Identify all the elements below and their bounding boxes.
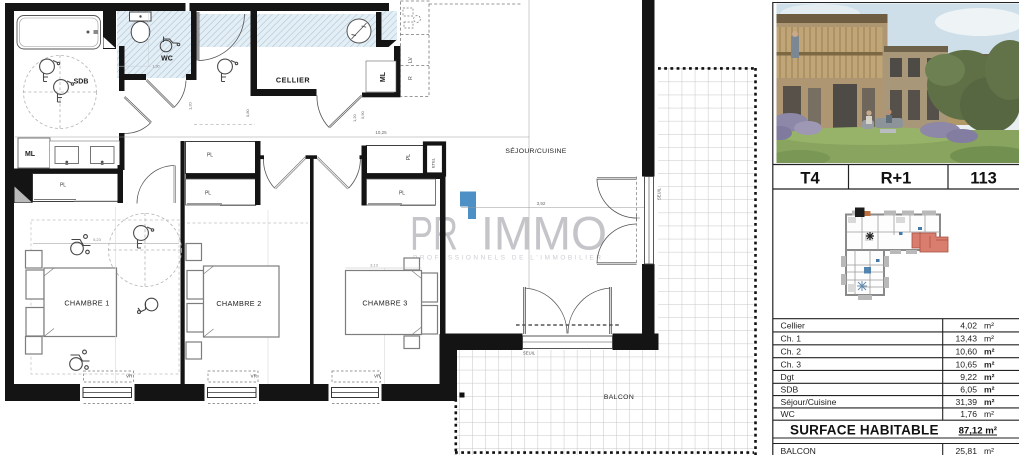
svg-text:PL: PL [207,153,213,159]
svg-text:SDB: SDB [74,79,89,86]
svg-text:1,30: 1,30 [153,65,160,69]
svg-text:9,22: 9,22 [960,372,977,382]
svg-text:ETEL: ETEL [431,157,436,168]
svg-text:87,12 m²: 87,12 m² [959,426,997,437]
svg-text:3,13: 3,13 [370,263,379,268]
svg-text:CHAMBRE 2: CHAMBRE 2 [216,299,261,308]
svg-text:CHAMBRE 3: CHAMBRE 3 [362,299,407,308]
svg-text:1,76: 1,76 [960,409,977,419]
svg-text:Cellier: Cellier [781,321,805,331]
svg-text:CELLIER: CELLIER [276,76,311,85]
svg-text:PL: PL [399,191,405,197]
svg-text:Ch. 2: Ch. 2 [781,347,802,357]
svg-text:6,05: 6,05 [960,385,977,395]
svg-text:10,65: 10,65 [955,359,977,369]
svg-text:m²: m² [984,409,994,419]
svg-text:LV: LV [408,56,414,62]
svg-text:SEUIL: SEUIL [657,187,662,200]
svg-text:1,20: 1,20 [352,113,357,122]
svg-text:SURFACE HABITABLE: SURFACE HABITABLE [790,423,939,438]
svg-text:5,23: 5,23 [93,237,102,242]
svg-text:10,60: 10,60 [955,347,977,357]
svg-text:1,20: 1,20 [188,101,193,110]
svg-text:WC: WC [781,409,795,419]
svg-text:SDB: SDB [781,385,799,395]
svg-text:R: R [408,76,414,80]
svg-text:0,80: 0,80 [245,108,250,117]
svg-text:PR: PR [410,207,458,260]
svg-text:ML: ML [25,151,36,158]
svg-text:T4: T4 [800,170,820,188]
svg-text:4,02: 4,02 [960,321,977,331]
svg-text:m²: m² [984,385,995,395]
svg-text:m²: m² [984,372,995,382]
svg-text:IMMO: IMMO [481,207,607,260]
svg-text:VR: VR [374,374,381,379]
svg-text:SÉJOUR/CUISINE: SÉJOUR/CUISINE [505,146,566,155]
svg-text:13,43: 13,43 [955,334,977,344]
svg-text:31,39: 31,39 [955,397,977,407]
svg-text:ML: ML [380,71,387,82]
svg-text:Dgt: Dgt [781,372,795,382]
svg-text:m²: m² [984,334,994,344]
svg-text:CHAMBRE 1: CHAMBRE 1 [64,299,109,308]
svg-text:SEUIL: SEUIL [523,351,536,356]
svg-text:BALCON: BALCON [781,446,816,455]
svg-text:m²: m² [984,321,994,331]
svg-text:Séjour/Cuisine: Séjour/Cuisine [781,397,837,407]
svg-text:0,90: 0,90 [360,110,365,119]
svg-text:BALCON: BALCON [604,394,634,401]
svg-text:VR: VR [251,374,258,379]
svg-text:PL: PL [60,183,66,189]
svg-text:3,92: 3,92 [537,201,546,206]
svg-text:25,81: 25,81 [955,446,977,455]
svg-text:m²: m² [984,446,994,455]
svg-text:Ch. 3: Ch. 3 [781,359,802,369]
svg-text:Ch. 1: Ch. 1 [781,334,802,344]
svg-text:WC: WC [161,56,173,63]
svg-text:10,25: 10,25 [375,130,387,135]
svg-text:PL: PL [406,154,412,160]
svg-text:113: 113 [970,170,997,188]
svg-text:m²: m² [984,359,995,369]
svg-text:R+1: R+1 [881,170,912,188]
svg-text:m²: m² [984,397,995,407]
svg-text:m²: m² [984,347,995,357]
svg-text:PL: PL [205,191,211,197]
